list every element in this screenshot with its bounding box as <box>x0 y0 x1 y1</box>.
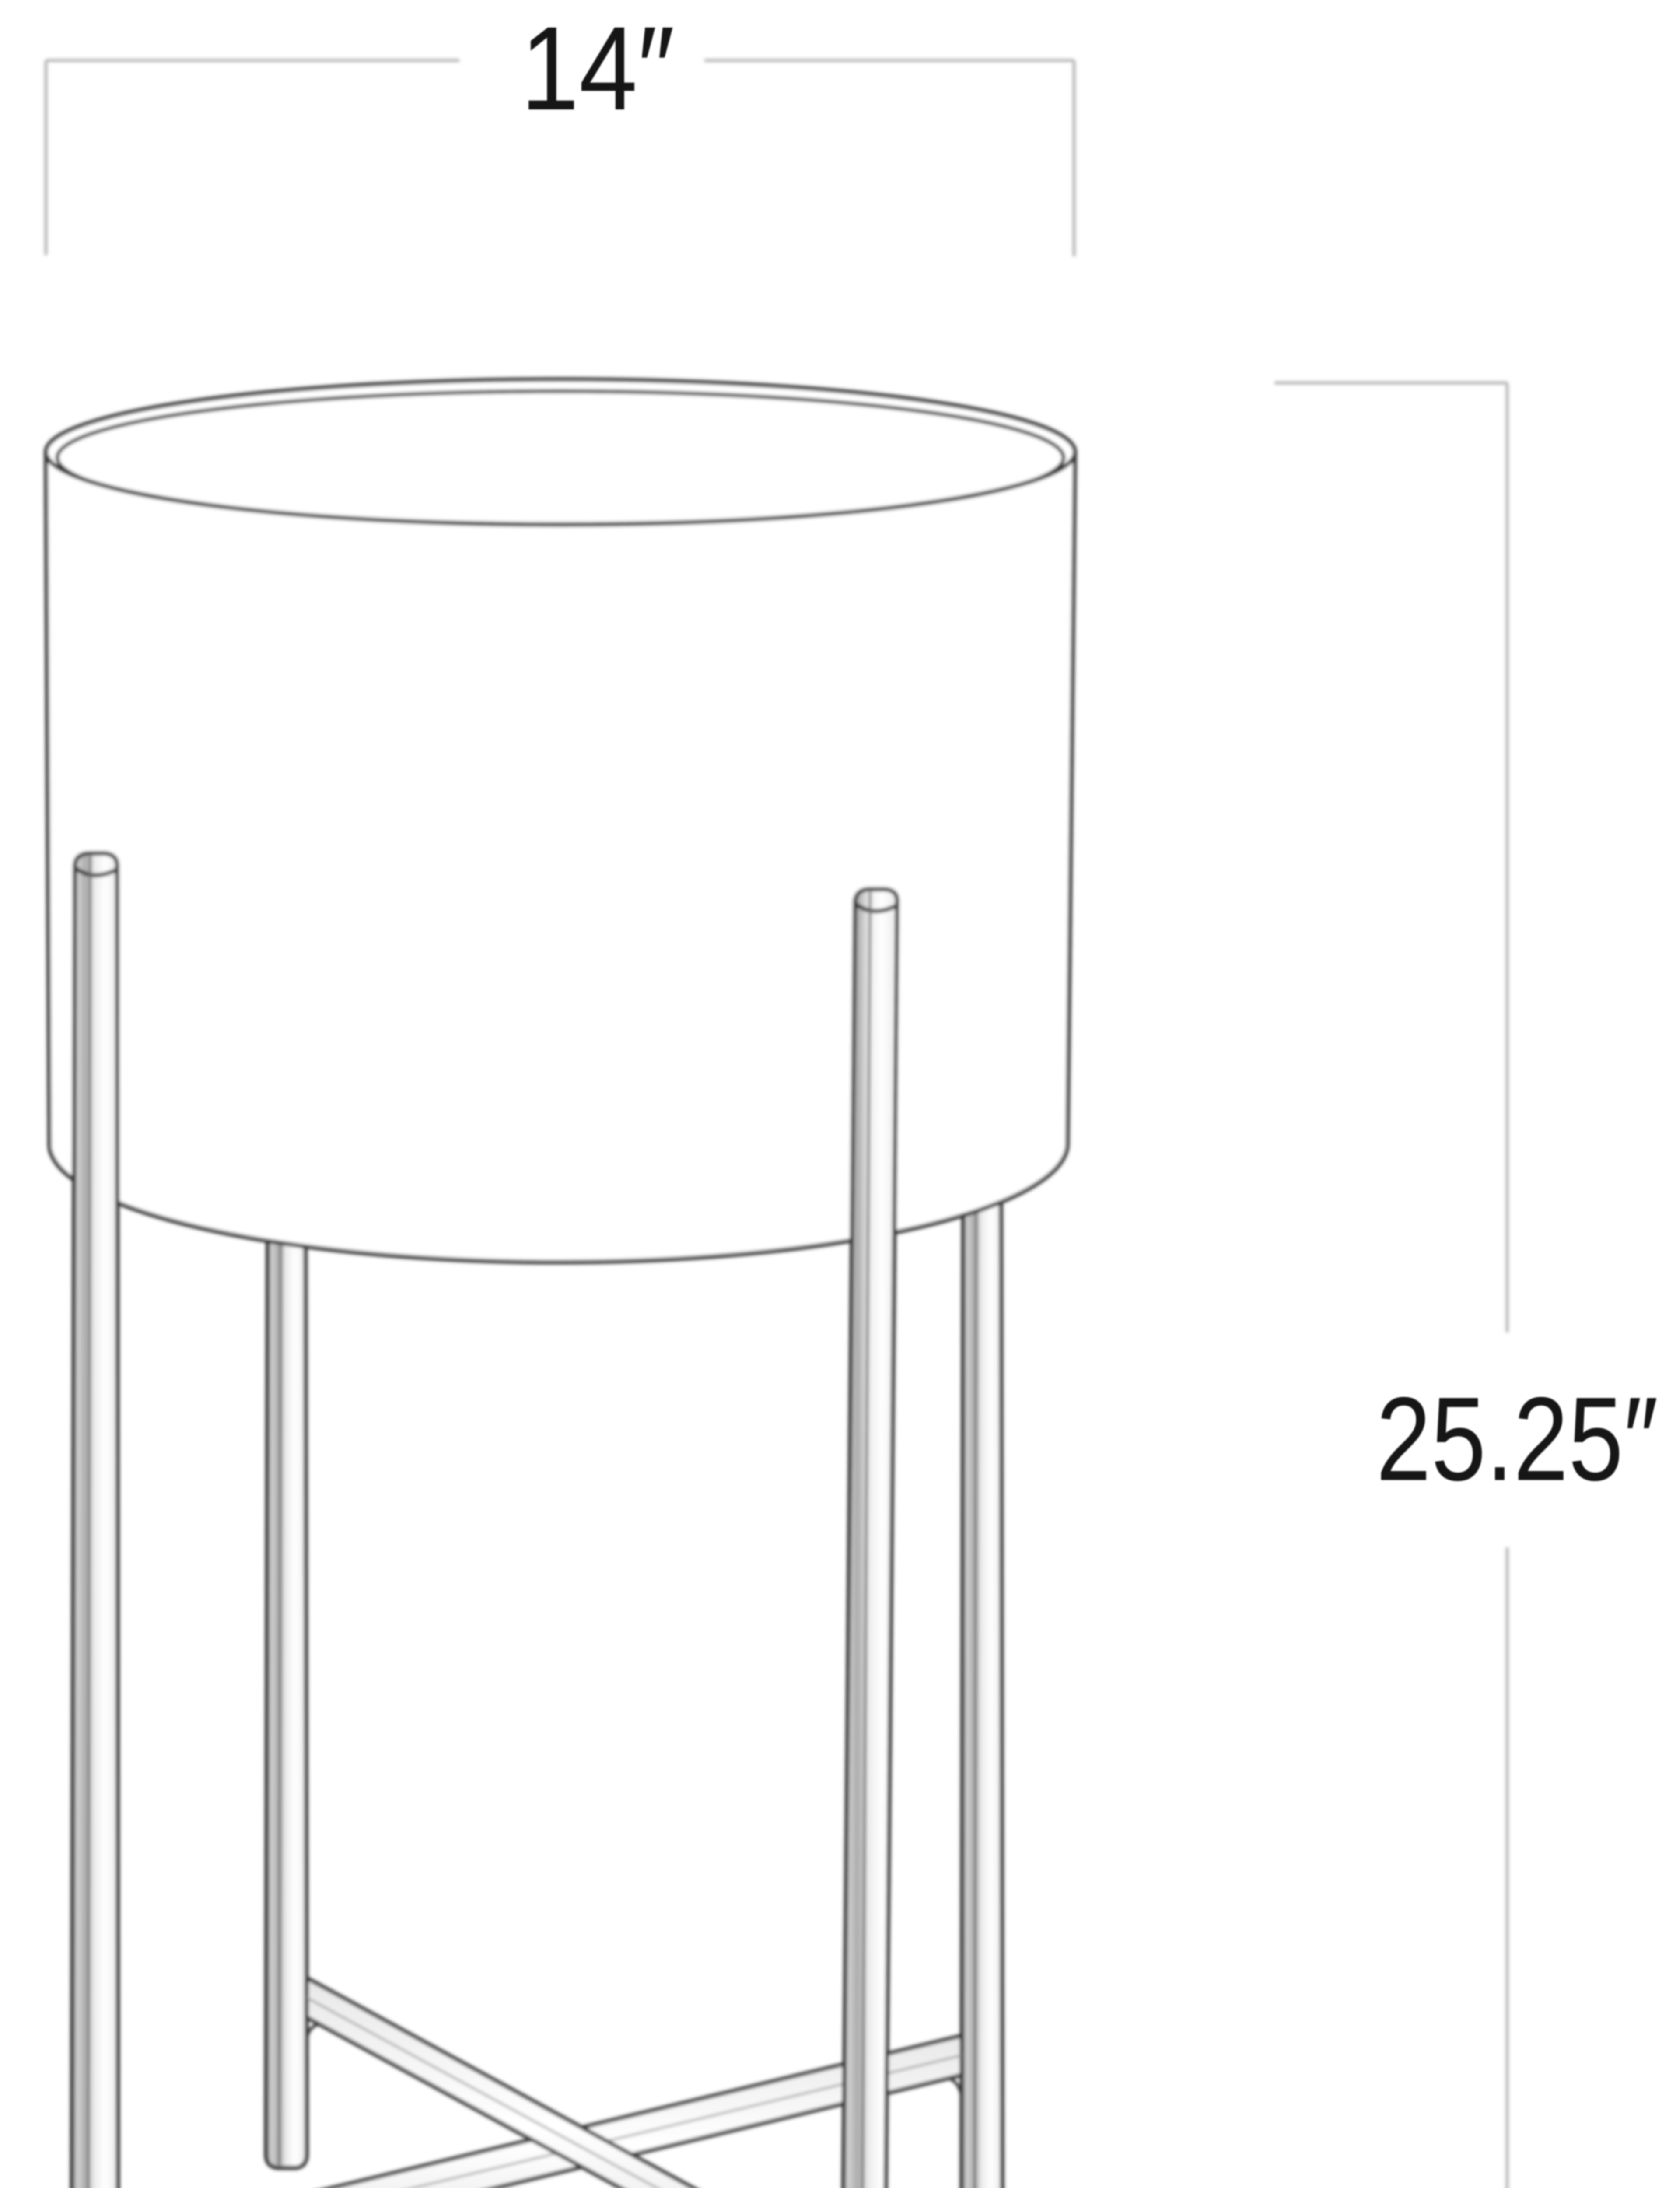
svg-text:25.25″: 25.25″ <box>1376 1372 1659 1505</box>
svg-text:14″: 14″ <box>521 2 675 135</box>
